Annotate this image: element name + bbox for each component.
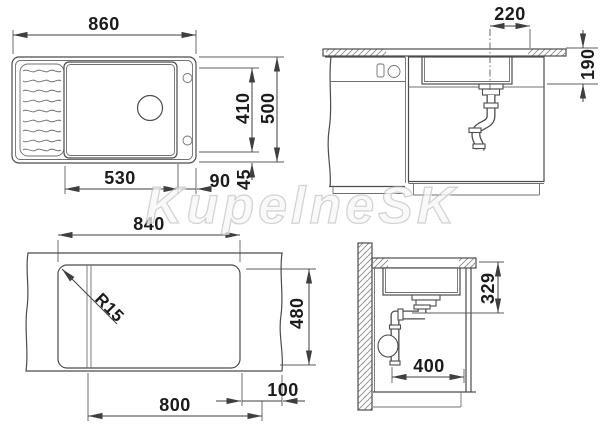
dim-label-bowl-to-edge: 90 <box>209 171 230 191</box>
side-coupling-3 <box>390 325 401 329</box>
sink-cabinet-base <box>409 184 545 196</box>
counter-piece-outline <box>26 253 282 371</box>
dim-label-top-to-drain: 329 <box>478 272 498 304</box>
strainer-flange <box>479 84 503 89</box>
dim-label-bowl-depth: 410 <box>233 92 253 124</box>
trap-coupling-1 <box>484 103 498 108</box>
cutout-outline <box>58 265 240 368</box>
side-cabinet-plinth <box>373 392 461 407</box>
wall-hatch <box>358 243 372 410</box>
dim-label-corner-radius: R15 <box>91 289 128 326</box>
sink-technical-drawing: 860 410 500 45 530 90 <box>0 0 600 436</box>
bowl-section-fill <box>422 57 512 84</box>
left-cabinet-base <box>333 187 405 194</box>
plan-view: 860 410 500 45 530 90 <box>12 14 284 194</box>
extension-lines-840 <box>58 240 240 262</box>
trap-coupling-3 <box>473 144 485 149</box>
side-coupling-1 <box>414 305 430 309</box>
side-pipe-end <box>390 361 400 365</box>
dim-label-overall-width: 860 <box>88 14 120 34</box>
dim-label-lower-span: 800 <box>159 395 191 415</box>
dim-label-edge-gap: 100 <box>267 380 299 400</box>
cutout-double-line <box>87 265 91 368</box>
side-cabinet-right-side <box>466 268 471 392</box>
dim-label-bowl-width: 530 <box>104 168 136 188</box>
strainer-nut <box>483 89 500 95</box>
dim-label-drain-to-edge: 220 <box>494 4 526 24</box>
tap-hole-top <box>183 74 192 83</box>
dim-label-cutout-depth: 480 <box>287 297 307 329</box>
side-section-view: 329 400 <box>358 243 504 410</box>
counter-hatch-right <box>528 50 565 57</box>
drain-hole <box>138 96 163 121</box>
counter-hatch-left <box>326 50 386 57</box>
front-section-view: 220 190 <box>323 4 598 195</box>
dim-label-cutout-width: 840 <box>133 214 165 234</box>
dim-label-edge-strip: 45 <box>234 169 254 190</box>
tap-hole-bottom <box>183 136 192 145</box>
left-cabinet-outline <box>325 57 405 187</box>
side-coupling-2 <box>398 309 403 320</box>
side-trap-bulge <box>378 335 398 357</box>
left-cabinet-knob <box>388 66 400 78</box>
side-strainer-flange <box>412 295 440 300</box>
bowl-outline <box>64 62 177 158</box>
side-counter-hatch-right <box>459 259 475 268</box>
side-bowl-fill <box>383 268 460 295</box>
trap-coupling-2 <box>469 128 481 133</box>
bowl-inner-line <box>67 65 175 156</box>
sink-rim-inner-line <box>16 61 193 160</box>
drainboard-waves <box>23 70 61 151</box>
cutout-view: 840 R15 480 800 100 <box>26 214 316 421</box>
side-counter-hatch-left <box>373 259 388 268</box>
dim-label-rim-to-bowl-bottom: 190 <box>578 48 598 80</box>
dim-label-overall-depth: 500 <box>258 92 278 124</box>
dim-label-trap-to-front: 400 <box>413 356 445 376</box>
left-cabinet-handle <box>377 64 384 77</box>
technical-drawing-page: 860 410 500 45 530 90 <box>0 0 600 436</box>
